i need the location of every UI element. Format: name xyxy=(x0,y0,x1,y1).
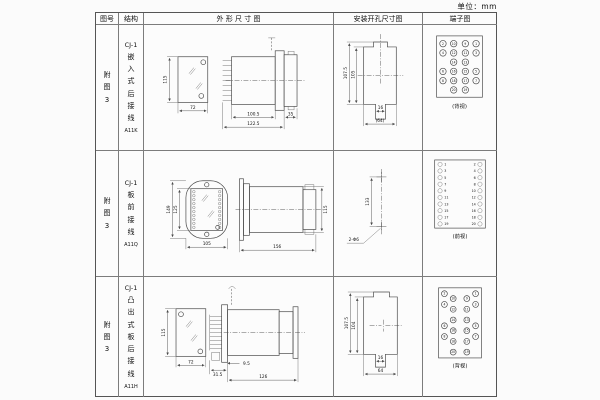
outline-drawing-a11k: 115 72 xyxy=(144,25,333,150)
svg-text:19: 19 xyxy=(444,222,448,226)
terminal-grid: 2 4 6 8 10 12 14 16 18 20 9 11 13 15 xyxy=(442,291,479,355)
svg-text:10: 10 xyxy=(452,42,456,46)
svg-text:20: 20 xyxy=(452,88,456,92)
svg-text:6: 6 xyxy=(442,70,444,74)
svg-text:2: 2 xyxy=(442,42,444,46)
svg-text:16: 16 xyxy=(451,329,455,333)
svg-text:18: 18 xyxy=(451,339,455,343)
header-structure: 结构 xyxy=(119,13,144,25)
terminal-grid: 1 3 5 7 9 11 13 15 17 19 2 4 6 8 xyxy=(438,162,482,226)
figure-no: 附图3 xyxy=(103,319,112,356)
structure-cell: CJ-1 凸出式板后接线 A11H xyxy=(119,277,144,397)
install-diagram-cell: 133 2-Φ6 xyxy=(334,151,423,277)
dim-height-inner: 104 xyxy=(351,321,357,329)
terminal-grid: 2 10 9 1 4 12 11 3 14 13 6 16 15 5 xyxy=(440,40,480,93)
install-drawing-a11k: 107.5 105 16 (64) xyxy=(334,25,422,150)
dim-flange-depth: 35 xyxy=(288,111,294,117)
install-diagram-cell: 107.5 104 16 64 xyxy=(334,277,423,397)
outline-drawing-a11h: 115 72 xyxy=(144,277,333,397)
structure-cell: CJ-1 板前接线 A11Q xyxy=(119,151,144,277)
terminal-view-caption: (背视) xyxy=(452,102,467,110)
outline-drawing-a11q: 149 125 105 xyxy=(144,151,333,276)
svg-text:19: 19 xyxy=(463,88,467,92)
install-drawing-a11q: 133 2-Φ6 xyxy=(334,151,422,276)
dim-hole-spacing: 133 xyxy=(365,197,371,205)
figure-no-cell: 附图3 xyxy=(96,277,119,397)
dim-side-height: 115 xyxy=(323,205,329,213)
svg-text:16: 16 xyxy=(472,209,476,213)
hole-label: 2-Φ6 xyxy=(349,237,360,243)
outline-diagram-cell: 115 72 xyxy=(144,25,334,151)
terminal-diagram-cell: 1 3 5 7 9 11 13 15 17 19 2 4 6 8 xyxy=(423,151,497,277)
svg-text:11: 11 xyxy=(463,51,467,55)
svg-text:4: 4 xyxy=(442,51,444,55)
dim-front-height: 115 xyxy=(163,75,169,83)
svg-text:12: 12 xyxy=(452,51,456,55)
svg-text:18: 18 xyxy=(472,216,476,220)
svg-text:7: 7 xyxy=(444,182,446,186)
dim-front-height-inner: 125 xyxy=(173,205,179,213)
svg-text:15: 15 xyxy=(444,209,448,213)
outline-diagram-cell: 149 125 105 xyxy=(144,151,334,277)
svg-text:9: 9 xyxy=(466,297,468,301)
front-view: 115 72 xyxy=(161,309,206,368)
dimension-table: 图号 结构 外 形 尺 寸 图 安装开孔尺寸图 端子图 附图3 CJ-1 嵌入式… xyxy=(95,12,497,397)
svg-text:7: 7 xyxy=(475,79,477,83)
structure-model: A11Q xyxy=(124,242,138,248)
svg-text:8: 8 xyxy=(474,182,476,186)
front-view: 149 125 105 xyxy=(166,181,228,249)
svg-text:6: 6 xyxy=(474,176,476,180)
svg-text:17: 17 xyxy=(465,339,469,343)
terminal-view-caption: (前视) xyxy=(453,232,468,240)
structure-title: CJ-1 xyxy=(125,284,138,292)
svg-text:5: 5 xyxy=(444,176,446,180)
terminal-diagram-cell: 2 4 6 8 10 12 14 16 18 20 9 11 13 15 xyxy=(423,277,497,397)
dim-depth-total: 126 xyxy=(259,374,267,380)
svg-text:12: 12 xyxy=(472,196,476,200)
front-view: 115 72 xyxy=(163,57,208,114)
svg-text:9: 9 xyxy=(464,42,466,46)
install-diagram-cell: 107.5 105 16 (64) xyxy=(334,25,423,151)
svg-text:18: 18 xyxy=(452,79,456,83)
svg-text:4: 4 xyxy=(474,169,476,173)
structure-cell: CJ-1 嵌入式后接线 A11K xyxy=(119,25,144,151)
svg-text:5: 5 xyxy=(475,324,477,328)
svg-text:9: 9 xyxy=(444,189,446,193)
header-figure-no: 图号 xyxy=(96,13,119,25)
svg-text:13: 13 xyxy=(444,202,448,206)
dim-slot-width: 16 xyxy=(378,355,384,361)
dim-a: 31.5 xyxy=(213,372,223,378)
svg-text:10: 10 xyxy=(451,297,455,301)
dim-depth-total: 122.5 xyxy=(247,121,259,127)
svg-text:3: 3 xyxy=(444,169,446,173)
dim-height-inner: 105 xyxy=(350,70,356,78)
page: 单位：mm 图号 结构 外 形 尺 寸 图 安装开孔尺寸图 端子图 附图3 CJ… xyxy=(0,0,600,400)
svg-text:11: 11 xyxy=(465,307,469,311)
svg-text:16: 16 xyxy=(452,70,456,74)
outline-diagram-cell: 115 72 xyxy=(144,277,334,397)
terminal-drawing-a11q: 1 3 5 7 9 11 13 15 17 19 2 4 6 8 xyxy=(423,151,497,276)
dim-width-total: 64 xyxy=(378,368,384,374)
svg-text:8: 8 xyxy=(443,335,445,339)
svg-text:3: 3 xyxy=(475,302,477,306)
header-install-dims: 安装开孔尺寸图 xyxy=(334,13,423,25)
dim-height-outer: 107.5 xyxy=(343,67,349,79)
dim-height-outer: 107.5 xyxy=(344,317,350,329)
svg-text:3: 3 xyxy=(475,51,477,55)
svg-text:4: 4 xyxy=(443,302,445,306)
svg-text:1: 1 xyxy=(475,292,477,296)
structure-model: A11H xyxy=(124,384,138,390)
header-outline-dims: 外 形 尺 寸 图 xyxy=(144,13,334,25)
svg-text:1: 1 xyxy=(475,42,477,46)
svg-text:8: 8 xyxy=(442,79,444,83)
side-view: 156 115 xyxy=(236,179,329,252)
svg-text:6: 6 xyxy=(443,324,445,328)
svg-text:20: 20 xyxy=(451,350,455,354)
structure-name: 凸出式板后接线 xyxy=(127,294,136,380)
dim-b: 9.5 xyxy=(243,361,250,367)
svg-text:1: 1 xyxy=(444,163,446,167)
svg-text:11: 11 xyxy=(444,196,448,200)
svg-text:2: 2 xyxy=(443,292,445,296)
svg-text:20: 20 xyxy=(472,222,476,226)
svg-text:14: 14 xyxy=(452,60,456,64)
install-drawing-a11h: 107.5 104 16 64 xyxy=(334,277,422,397)
svg-text:14: 14 xyxy=(451,318,455,322)
structure-name: 板前接线 xyxy=(127,189,136,238)
dim-front-width: 72 xyxy=(190,105,196,111)
side-view: 9.5 31.5 126 xyxy=(210,286,305,382)
svg-text:15: 15 xyxy=(465,329,469,333)
figure-no-cell: 附图3 xyxy=(96,25,119,151)
terminal-drawing-a11h: 2 4 6 8 10 12 14 16 18 20 9 11 13 15 xyxy=(423,277,497,397)
structure-title: CJ-1 xyxy=(125,179,138,187)
dim-depth-a: 100.5 xyxy=(247,111,259,117)
svg-text:15: 15 xyxy=(463,70,467,74)
terminal-diagram-cell: 2 10 9 1 4 12 11 3 14 13 6 16 15 5 xyxy=(423,25,497,151)
svg-text:10: 10 xyxy=(472,189,476,193)
dim-front-height-outer: 149 xyxy=(166,205,172,213)
terminal-drawing-a11k: 2 10 9 1 4 12 11 3 14 13 6 16 15 5 xyxy=(423,25,497,150)
dim-depth-total: 156 xyxy=(273,244,281,250)
dim-front-height: 115 xyxy=(161,328,167,336)
svg-text:14: 14 xyxy=(472,202,476,206)
structure-title: CJ-1 xyxy=(125,41,138,49)
svg-text:13: 13 xyxy=(465,318,469,322)
svg-text:13: 13 xyxy=(463,60,467,64)
svg-text:7: 7 xyxy=(475,335,477,339)
svg-text:2: 2 xyxy=(474,163,476,167)
svg-text:12: 12 xyxy=(451,307,455,311)
dim-front-width: 105 xyxy=(203,241,211,247)
svg-text:5: 5 xyxy=(475,70,477,74)
figure-no: 附图3 xyxy=(103,195,112,232)
dim-slot-width: 16 xyxy=(378,105,384,111)
unit-label: 单位：mm xyxy=(457,1,497,12)
header-terminal-diagram: 端子图 xyxy=(423,13,497,25)
figure-no: 附图3 xyxy=(103,69,112,106)
structure-model: A11K xyxy=(124,128,137,134)
structure-name: 嵌入式后接线 xyxy=(127,51,136,125)
side-view: 100.5 122.5 35 xyxy=(223,38,305,129)
svg-text:19: 19 xyxy=(465,350,469,354)
svg-text:17: 17 xyxy=(444,216,448,220)
dim-front-width: 72 xyxy=(188,359,194,365)
dim-width-total: (64) xyxy=(376,118,385,124)
terminal-view-caption: (背视) xyxy=(453,362,468,370)
svg-text:17: 17 xyxy=(463,79,467,83)
figure-no-cell: 附图3 xyxy=(96,151,119,277)
